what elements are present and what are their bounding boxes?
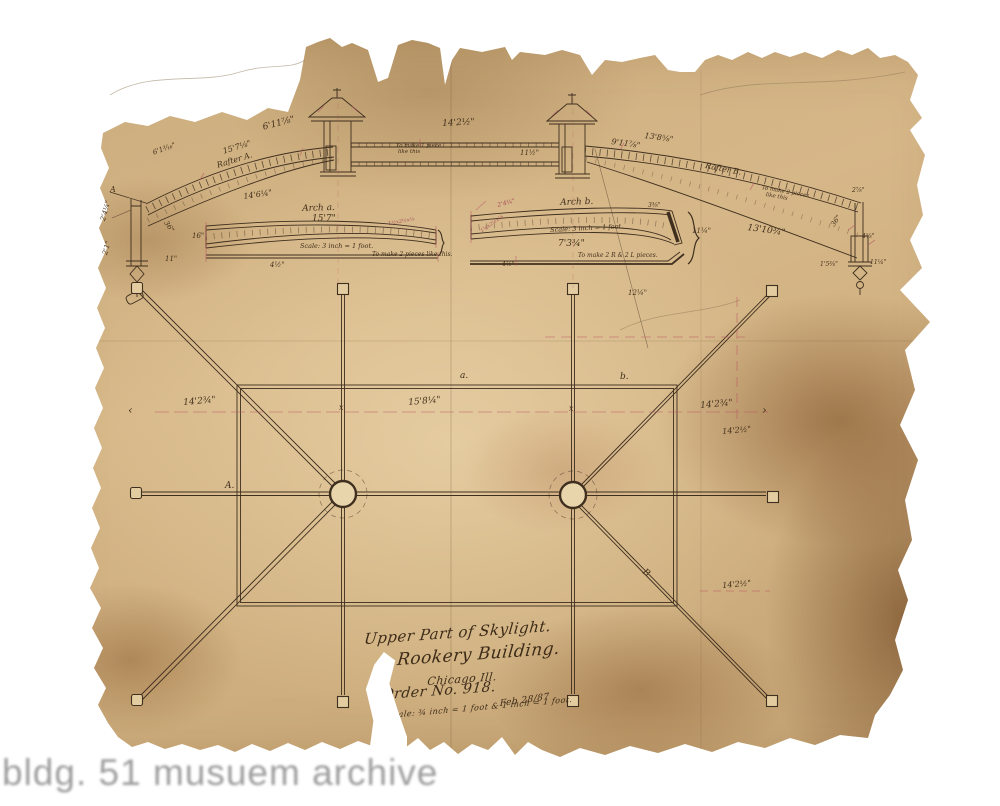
note-label: To make 2 pieces like this. (372, 252, 452, 258)
dim-label: 11¼" (870, 260, 886, 266)
member-label-A: A. (225, 482, 234, 491)
arrow-mark: › (762, 404, 767, 416)
marker-label: A (110, 186, 116, 194)
dim-label: 3⅜" (648, 203, 660, 209)
x-mark: x (569, 405, 574, 413)
dim-label: 4½" (270, 262, 284, 269)
member-label-a: a. (460, 372, 468, 381)
dim-label: 15'7" (312, 215, 336, 224)
dim-label: 12¼" (628, 290, 647, 297)
drawing-linework (0, 0, 1000, 806)
x-mark: x (339, 404, 344, 412)
dim-label: 7'3¾" (558, 240, 585, 249)
member-label-b: b. (620, 373, 629, 382)
dim-label: 11" (165, 256, 177, 263)
dim-label: 4⅝" (862, 234, 874, 240)
dim-label: 2⅞" (852, 188, 864, 194)
dim-label: 16" (192, 233, 204, 240)
scale-note: Scale: 3 inch = 1 foot. (300, 243, 373, 250)
arch-a-title: Arch a. (302, 204, 335, 214)
dim-label: 14'2½" (442, 118, 475, 129)
note-label: like this (398, 150, 420, 156)
arch-b-title: Arch b. (560, 198, 593, 208)
dim-label: 11¼" (692, 228, 711, 235)
archive-watermark: bldg. 51 musuem archive (2, 752, 438, 794)
arrow-mark: ‹ (128, 404, 133, 416)
note-label: To make 2 R & 2 L pieces. (578, 253, 658, 259)
dim-label: 1'5⅜" (820, 262, 838, 268)
dim-label: 11½" (520, 150, 539, 157)
dim-label: 4½" (502, 262, 514, 268)
scanned-drawing: 6'1³⁄₁₆" 15'7⅛" Rafter A. 6'11⅞" 14'6¼" … (0, 0, 1000, 806)
